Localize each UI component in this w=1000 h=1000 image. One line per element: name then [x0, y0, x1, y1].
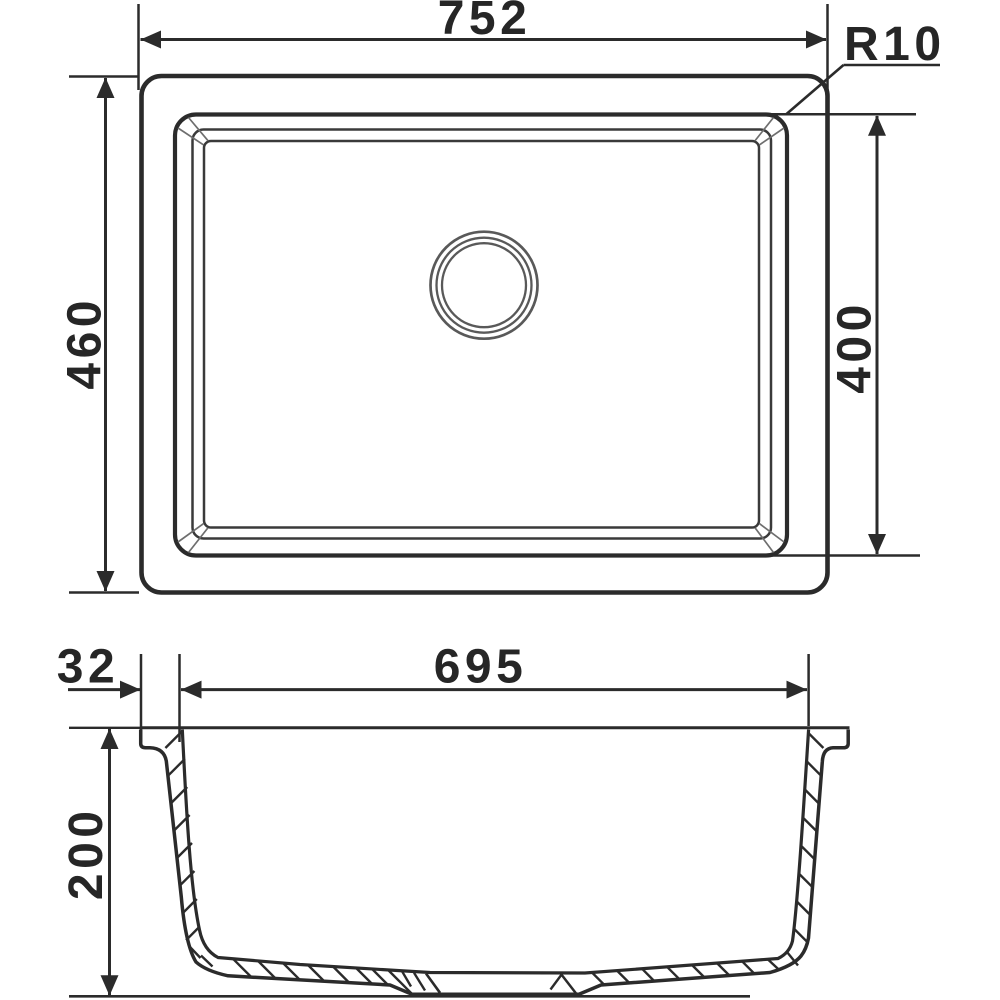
svg-text:200: 200	[60, 807, 113, 901]
svg-text:32: 32	[57, 641, 119, 694]
svg-text:752: 752	[438, 0, 532, 45]
svg-text:460: 460	[59, 296, 112, 390]
svg-text:695: 695	[434, 641, 528, 694]
svg-text:400: 400	[829, 300, 882, 394]
svg-text:R10: R10	[844, 18, 946, 71]
